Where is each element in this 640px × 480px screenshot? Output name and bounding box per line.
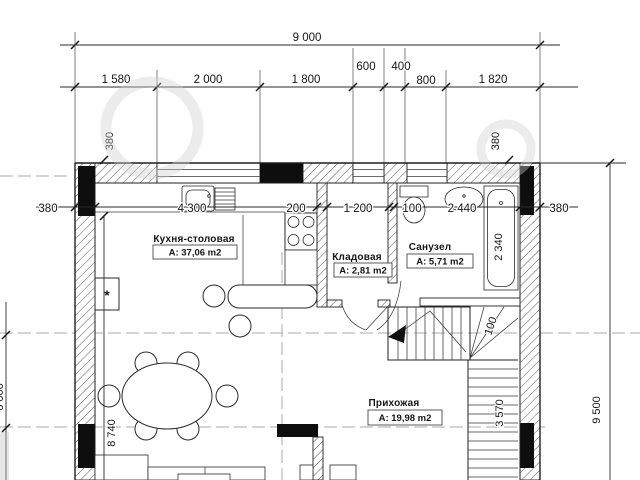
dim-bathtub-2340: 2 340 xyxy=(493,233,505,261)
appliance-mark: * xyxy=(104,287,110,303)
dim-seg-600: 600 xyxy=(356,61,375,73)
partition-bottom xyxy=(313,437,323,480)
window-storage xyxy=(353,163,384,183)
dim-100: 100 xyxy=(402,203,421,215)
floor-plan: 9 000 1 580 2 000 1 800 600 400 800 1 82… xyxy=(0,0,640,480)
bathroom-fixtures: 2 340 xyxy=(400,186,518,290)
kitchen-island xyxy=(203,285,317,337)
door-frame-bottom xyxy=(330,465,356,480)
dim-9500: 9 500 xyxy=(591,396,603,424)
pier-interior-stub xyxy=(277,424,318,437)
dim-wall-380-right: 380 xyxy=(549,203,568,215)
pier-right-lower xyxy=(520,423,534,468)
flight-treads xyxy=(468,369,518,477)
dim-left-edge: 6 000 xyxy=(0,383,6,411)
dim-seg-400: 400 xyxy=(391,61,410,73)
dim-wall-380-left: 380 xyxy=(38,203,57,215)
pier-left-lower xyxy=(78,424,95,468)
pier-right-top xyxy=(520,166,534,215)
pier-top-wall xyxy=(260,163,303,183)
appliance-box: * xyxy=(95,278,119,310)
label-hallway-area: А: 19,98 m2 xyxy=(379,413,432,424)
dining-table xyxy=(122,363,212,429)
dim-4300: 4 300 xyxy=(178,203,207,215)
storage-bottom-wall-a xyxy=(327,300,342,307)
label-hallway-name: Прихожая xyxy=(369,398,420,409)
stair-direction-arrow xyxy=(388,311,466,352)
dim-8740: 8 740 xyxy=(106,419,118,447)
dim-200: 200 xyxy=(286,203,305,215)
dim-2440: 2 440 xyxy=(448,203,477,215)
clipped-label-box xyxy=(178,474,230,480)
door-storage xyxy=(342,304,390,330)
bathroom-bottom-wall xyxy=(420,298,520,306)
dim-seg-1820: 1 820 xyxy=(479,74,508,86)
dim-stair-3570: 3 570 xyxy=(494,399,506,427)
window-bathroom xyxy=(407,163,447,183)
label-bathroom-area: А: 5,71 m2 xyxy=(416,257,464,268)
door-leaf-bottom xyxy=(300,465,313,480)
dim-seg-2000: 2 000 xyxy=(194,74,223,86)
dim-overall-width: 9 000 xyxy=(293,32,322,44)
label-kitchen-name: Кухня-столовая xyxy=(153,234,234,245)
partition-storage-left xyxy=(317,183,327,307)
dim-seg-1580: 1 580 xyxy=(102,74,131,86)
dim-wallthick-left: 380 xyxy=(104,132,116,150)
dim-1200: 1 200 xyxy=(344,203,373,215)
window-kitchen xyxy=(157,163,260,183)
label-kitchen-area: А: 37,06 m2 xyxy=(169,248,222,259)
stove xyxy=(285,213,317,285)
label-bathroom-name: Санузел xyxy=(409,242,452,253)
dim-seg-1800: 1 800 xyxy=(292,74,321,86)
dim-wallthick-right: 380 xyxy=(490,132,502,150)
label-storage-name: Кладовая xyxy=(332,252,382,263)
label-storage-area: А: 2,81 m2 xyxy=(339,266,387,277)
dim-seg-800: 800 xyxy=(416,75,435,87)
bottom-cabinets xyxy=(95,455,265,480)
